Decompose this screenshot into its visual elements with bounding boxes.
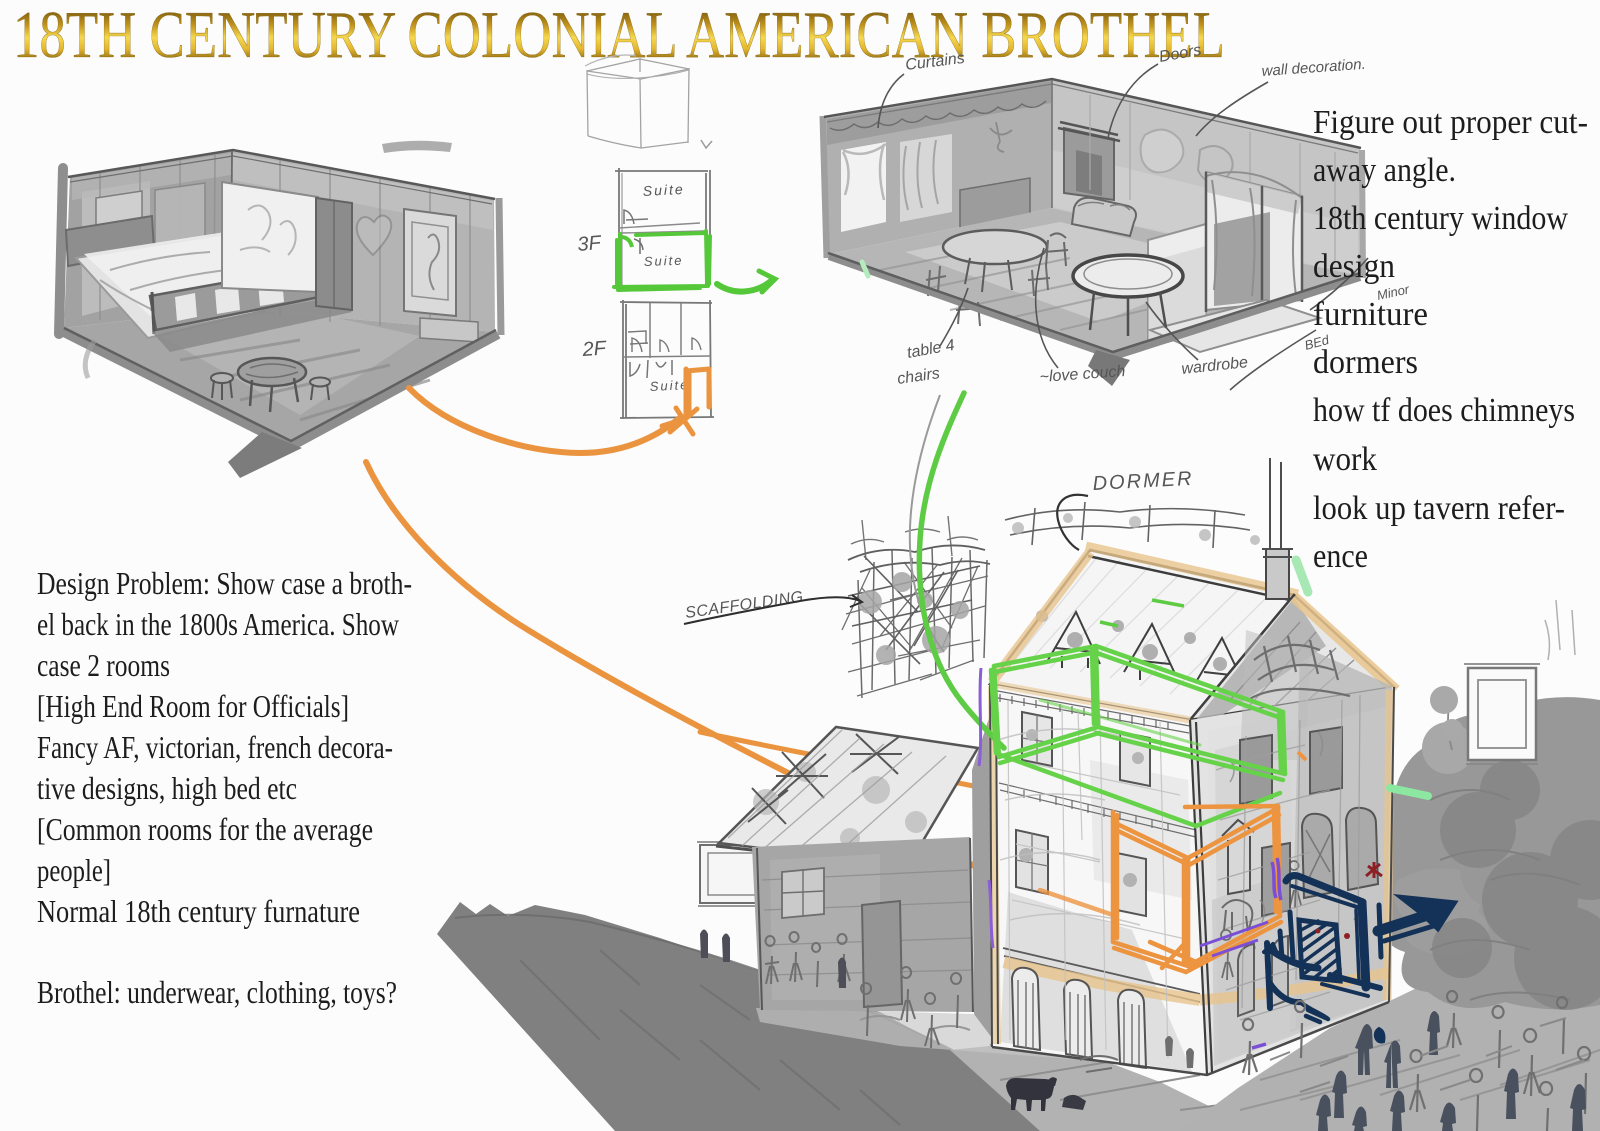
svg-text:18TH CENTURY COLONIAL AMERICAN: 18TH CENTURY COLONIAL AMERICAN BROTHEL	[13, 0, 1225, 72]
svg-text:Normal 18th century furnature: Normal 18th century furnature	[37, 893, 360, 929]
svg-text:Figure out proper cut-: Figure out proper cut-	[1313, 104, 1588, 141]
svg-text:Suite: Suite	[642, 181, 685, 199]
svg-text:2F: 2F	[581, 337, 609, 361]
svg-text:design: design	[1313, 248, 1395, 285]
svg-text:el back in the 1800s America.: el back in the 1800s America. Show	[37, 606, 399, 642]
svg-text:[High End Room for Officials]: [High End Room for Officials]	[37, 688, 349, 724]
svg-text:ence: ence	[1313, 538, 1368, 575]
svg-text:Design Problem: Show case a br: Design Problem: Show case a broth-	[37, 565, 412, 601]
svg-text:furniture: furniture	[1313, 296, 1428, 333]
svg-text:Suite: Suite	[644, 253, 684, 269]
svg-text:how tf does chimneys: how tf does chimneys	[1313, 392, 1575, 429]
svg-text:3F: 3F	[577, 232, 604, 256]
svg-text:[Common rooms for the average: [Common rooms for the average	[37, 811, 373, 847]
svg-text:work: work	[1313, 441, 1377, 478]
svg-text:18th century window: 18th century window	[1313, 200, 1568, 237]
svg-text:dormers: dormers	[1313, 344, 1418, 381]
svg-text:look up tavern refer-: look up tavern refer-	[1313, 490, 1565, 527]
svg-text:away angle.: away angle.	[1313, 152, 1456, 189]
svg-text:case 2 rooms: case 2 rooms	[37, 647, 170, 683]
svg-text:Brothel: underwear, clothing,: Brothel: underwear, clothing, toys?	[37, 974, 397, 1010]
svg-text:people]: people]	[37, 852, 111, 888]
svg-text:Fancy AF, victorian, french de: Fancy AF, victorian, french decora-	[37, 729, 393, 765]
svg-text:tive designs, high bed etc: tive designs, high bed etc	[37, 770, 297, 806]
